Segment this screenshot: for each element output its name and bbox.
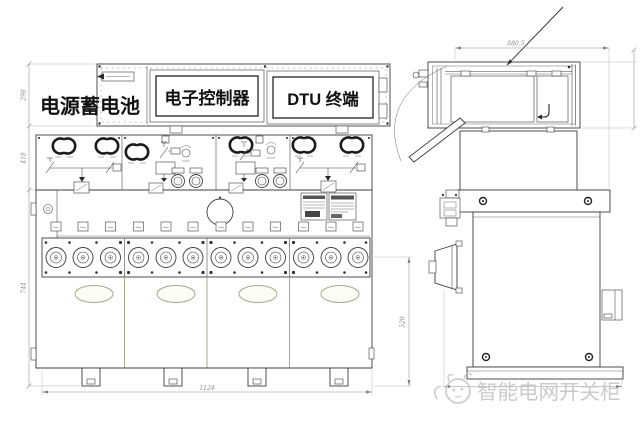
- screw: [585, 198, 592, 205]
- vent-oval: [75, 286, 113, 303]
- screw: [586, 354, 593, 361]
- nameplate: [329, 193, 356, 220]
- foot: [82, 368, 100, 386]
- side-compartment-left: [451, 76, 534, 122]
- leader-line: [507, 7, 563, 65]
- battery-bracket: [97, 72, 134, 81]
- vent-oval: [157, 286, 195, 303]
- vent-oval: [321, 286, 359, 303]
- dim-front-left-top: 298: [21, 89, 28, 102]
- controller-callout-label: 电子控制器: [156, 76, 258, 116]
- dim-front-bottom-width: 1124: [199, 385, 214, 392]
- side-base: [467, 367, 623, 379]
- foot: [248, 368, 266, 386]
- watermark-logo: [435, 374, 472, 403]
- screw: [483, 354, 490, 361]
- base-and-feet: [36, 368, 372, 386]
- hinge-detail: [379, 104, 387, 118]
- dim-side-height: 520: [400, 316, 407, 328]
- side-top-box: [413, 62, 580, 128]
- side-mid-body: [460, 127, 577, 190]
- nameplate: [301, 193, 327, 220]
- dim-side-top-width: 880.5: [507, 41, 524, 48]
- screw: [480, 198, 487, 205]
- dim-front-left-mid: 418: [21, 152, 28, 165]
- dim-front-left-bottom: 744: [21, 282, 28, 294]
- dtu-callout-label: DTU 终端: [273, 77, 373, 118]
- interlock-bracket: [440, 190, 460, 226]
- drawing-canvas: 298 418 744 1124: [0, 0, 640, 422]
- hinge-knob: [413, 72, 419, 78]
- watermark-text: 智能电网开关柜: [477, 381, 621, 404]
- foot: [164, 368, 182, 386]
- side-view: 880.5 520: [374, 7, 637, 389]
- foot: [330, 368, 348, 386]
- cable-bushing-row: [42, 238, 370, 277]
- side-tank: [457, 190, 610, 367]
- hinge-detail: [379, 78, 387, 92]
- vent-oval: [239, 286, 277, 303]
- battery-callout-label: 电源蓄电池: [40, 90, 140, 119]
- switchgear-engineering-drawing: 298 418 744 1124: [0, 0, 640, 422]
- side-cable-bushing: [429, 241, 462, 293]
- right-bracket: [602, 290, 622, 320]
